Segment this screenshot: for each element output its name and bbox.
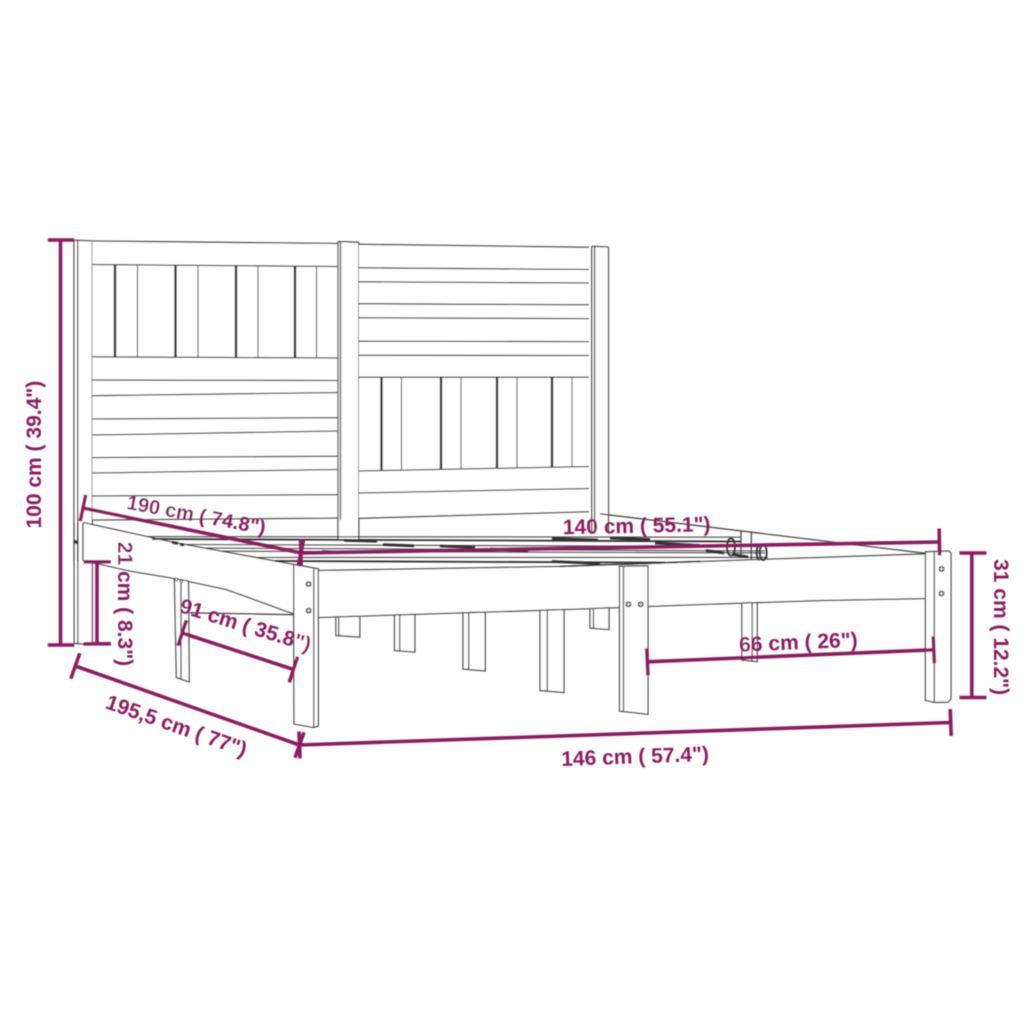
svg-text:100 cm ( 39.4"): 100 cm ( 39.4") xyxy=(23,381,46,529)
svg-text:140 cm ( 55.1"): 140 cm ( 55.1") xyxy=(563,513,711,539)
svg-text:31 cm ( 12.2"): 31 cm ( 12.2") xyxy=(989,559,1012,695)
svg-text:21 cm ( 8.3"): 21 cm ( 8.3") xyxy=(113,542,136,666)
